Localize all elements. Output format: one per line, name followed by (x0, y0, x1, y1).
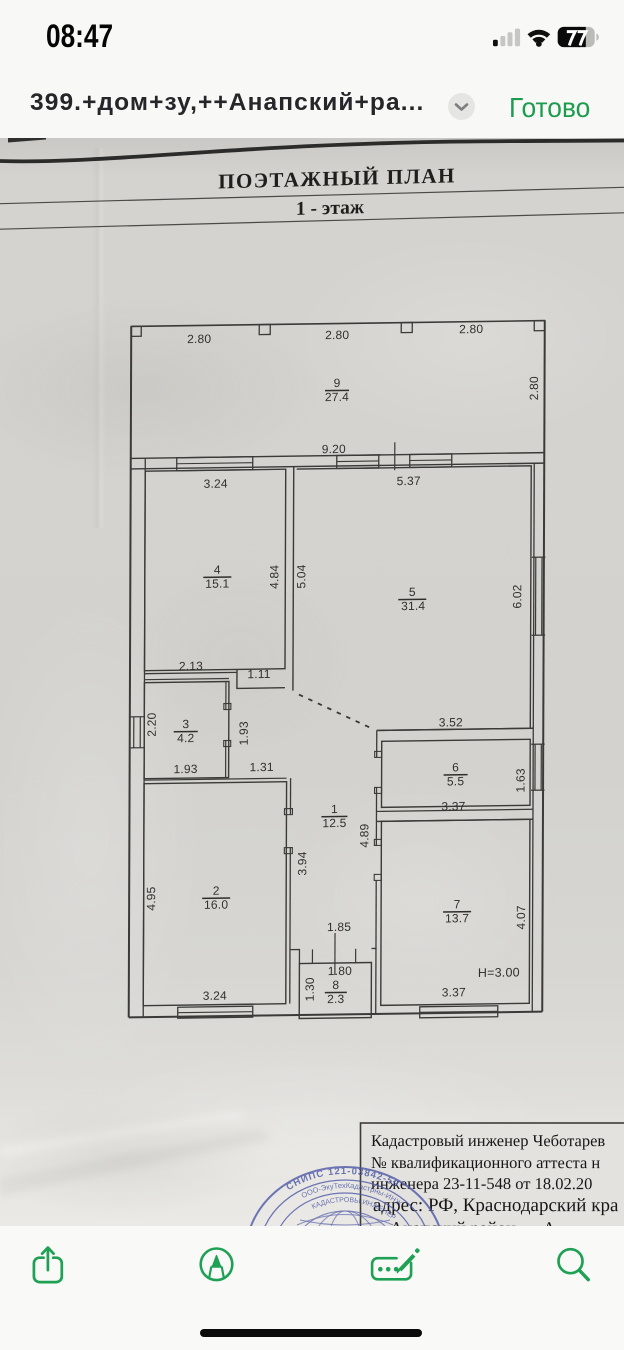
svg-text:1.93: 1.93 (237, 721, 251, 745)
svg-text:3.24: 3.24 (204, 477, 228, 491)
svg-text:1.80: 1.80 (328, 964, 352, 978)
svg-text:9.20: 9.20 (322, 442, 346, 456)
svg-text:15.1: 15.1 (205, 577, 229, 591)
svg-text:2.80: 2.80 (459, 322, 483, 336)
svg-text:3.24: 3.24 (203, 989, 227, 1003)
svg-text:Кадастровый инженер Чеботарев: Кадастровый инженер Чеботарев (371, 1131, 605, 1150)
svg-text:4.07: 4.07 (514, 905, 528, 929)
svg-text:3.94: 3.94 (295, 851, 309, 875)
svg-text:2.80: 2.80 (325, 328, 349, 342)
svg-text:7: 7 (454, 897, 461, 911)
svg-text:4.95: 4.95 (144, 886, 158, 910)
svg-text:1.85: 1.85 (327, 920, 351, 934)
svg-text:12.5: 12.5 (322, 816, 346, 830)
svg-text:5.04: 5.04 (294, 564, 308, 588)
svg-text:13.7: 13.7 (445, 911, 469, 925)
svg-text:2.13: 2.13 (179, 659, 203, 673)
svg-text:5.5: 5.5 (447, 774, 464, 788)
svg-text:2: 2 (213, 884, 220, 898)
svg-text:4.2: 4.2 (177, 731, 194, 745)
svg-text:1.63: 1.63 (514, 768, 528, 792)
svg-text:1.11: 1.11 (247, 667, 270, 681)
svg-text:№ квалификационного аттеста н: № квалификационного аттеста н (371, 1153, 600, 1172)
svg-text:4.89: 4.89 (357, 823, 371, 847)
svg-text:2.20: 2.20 (145, 712, 159, 736)
svg-text:2.80: 2.80 (527, 376, 541, 400)
svg-text:4: 4 (214, 563, 221, 577)
svg-text:4.84: 4.84 (267, 565, 281, 589)
svg-text:1 - этаж: 1 - этаж (296, 197, 365, 220)
svg-text:Анапский район, А: Анапский район, А (390, 1218, 556, 1226)
svg-text:1.30: 1.30 (303, 977, 317, 1001)
svg-text:1.31: 1.31 (250, 760, 274, 774)
svg-text:ПОЭТАЖНЫЙ ПЛАН: ПОЭТАЖНЫЙ ПЛАН (218, 163, 455, 193)
svg-text:16.0: 16.0 (204, 898, 228, 912)
svg-text:9: 9 (334, 376, 341, 390)
svg-text:5: 5 (409, 585, 416, 599)
svg-text:3: 3 (182, 717, 189, 731)
svg-text:31.4: 31.4 (401, 599, 425, 613)
svg-text:3.37: 3.37 (441, 799, 465, 813)
svg-text:2.3: 2.3 (327, 992, 344, 1006)
svg-text:27.4: 27.4 (325, 390, 349, 404)
svg-text:2.80: 2.80 (187, 332, 211, 346)
svg-text:H=3.00: H=3.00 (478, 965, 520, 980)
svg-text:6: 6 (452, 760, 459, 774)
svg-text:3.37: 3.37 (442, 985, 466, 999)
svg-text:8: 8 (332, 978, 339, 992)
svg-text:1: 1 (331, 802, 338, 816)
svg-text:3.52: 3.52 (439, 715, 463, 729)
svg-text:5.37: 5.37 (397, 474, 421, 488)
svg-text:1.93: 1.93 (174, 762, 198, 776)
svg-text:6.02: 6.02 (510, 584, 524, 608)
